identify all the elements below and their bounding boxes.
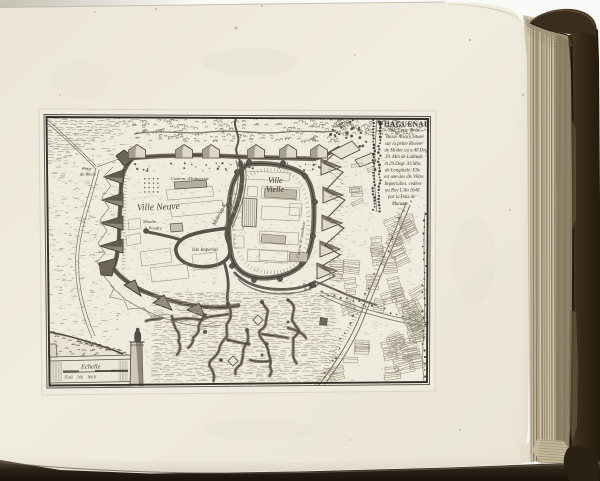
svg-text:Ville Neuve: Ville Neuve [137,202,180,213]
svg-text:au Roy L'An 1648.: au Roy L'An 1648. [385,188,421,193]
svg-text:sur la petite Riviere: sur la petite Riviere [385,142,423,147]
svg-text:de R.: de R. [304,287,312,292]
svg-text:Isle Imperial: Isle Imperial [191,248,218,253]
svg-text:et 29.Degr. 33.Min.: et 29.Degr. 33.Min. [385,162,422,167]
svg-text:de Moder ou a 48.Deg: de Moder ou a 48.Deg [385,149,429,154]
svg-text:par la Paix de: par la Paix de [387,195,416,200]
svg-text:est une des dix Villes: est une des dix Villes [384,175,424,180]
svg-text:Munster.: Munster. [391,202,409,207]
svg-text:Ville Forte de la: Ville Forte de la [388,129,420,134]
svg-text:Cazerne d'Infanterie: Cazerne d'Infanterie [171,176,209,181]
svg-text:Porte: Porte [81,166,92,171]
svg-text:39. Min de Latitude: 39. Min de Latitude [385,155,424,160]
svg-text:a Poudre: a Poudre [145,226,162,231]
svg-text:HAGUENAU: HAGUENAU [384,121,430,129]
svg-text:Ville: Ville [268,176,283,185]
svg-text:35 mil 3.00 300 P.: 35 mil 3.00 300 P. [64,376,97,380]
svg-text:de Longitude. Elle: de Longitude. Elle [385,169,421,174]
svg-text:Echelle: Echelle [80,364,101,371]
svg-text:Imperialles. cedées: Imperialles. cedées [384,182,422,187]
svg-text:du Rhein: du Rhein [80,172,97,177]
svg-text:Vielle: Vielle [266,185,285,194]
svg-text:Moulin: Moulin [142,219,157,224]
svg-text:Basse Alsace Situeé: Basse Alsace Situeé [386,135,425,140]
